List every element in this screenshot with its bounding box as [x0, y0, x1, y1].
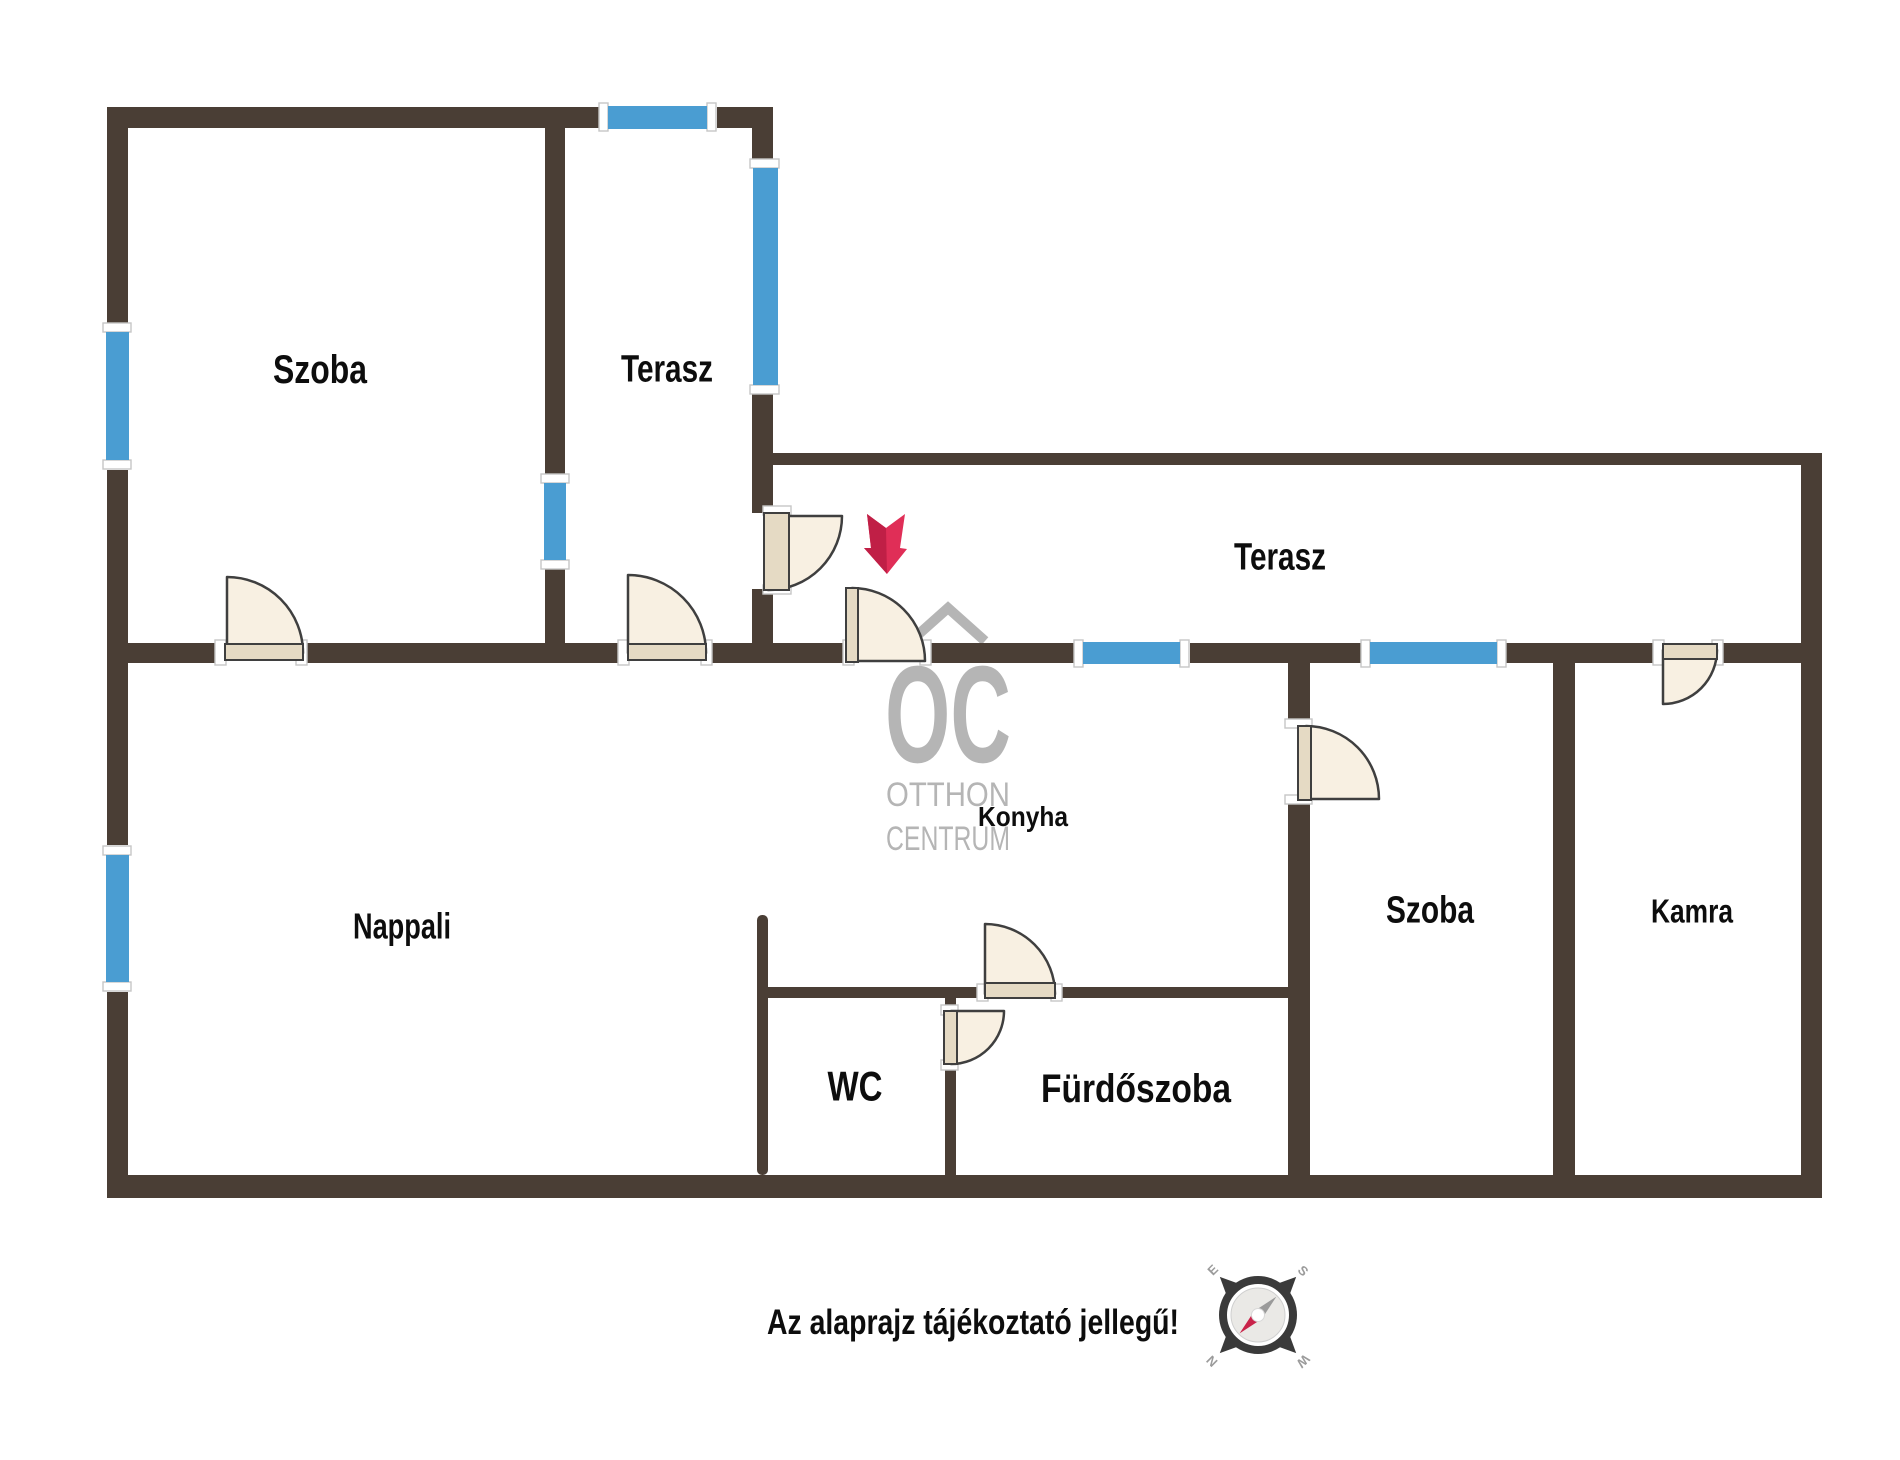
window-glass: [753, 168, 778, 385]
wall-outer-left-b: [107, 470, 128, 643]
wall-divider-szoba-terasz-a: [545, 128, 565, 475]
window-cap: [541, 474, 569, 483]
wall-main-d: [925, 643, 1074, 663]
window-glass: [608, 106, 707, 129]
window-cap: [750, 385, 779, 394]
window-glass: [106, 855, 129, 982]
room-label-nappali: Nappali: [353, 906, 451, 947]
wall-divider-konyha-szoba-b: [1288, 800, 1310, 1175]
wall-outer-left-d: [107, 992, 128, 1175]
wall-main-c: [706, 643, 852, 663]
wall-terasz-right-b: [752, 391, 773, 513]
door-leaf: [1663, 644, 1717, 659]
door-leaf: [1298, 726, 1311, 800]
window-cap: [103, 846, 131, 855]
window-cap: [541, 560, 569, 569]
main-wall-window-2: [1361, 640, 1506, 667]
room-label-wc: WC: [828, 1063, 883, 1110]
floorplan-svg: OCOTTHONCENTRUMSzobaTeraszTeraszNappaliK…: [0, 0, 1900, 1460]
wall-main-e: [1190, 643, 1361, 663]
door-leaf: [628, 644, 706, 660]
wall-wc-left: [757, 915, 768, 1175]
szoba-tl-window: [103, 323, 131, 469]
window-glass: [1083, 642, 1180, 664]
wall-outer-left-a: [107, 107, 128, 327]
wall-divider-szoba-terasz-b: [545, 568, 565, 643]
disclaimer-text: Az alaprajz tájékoztató jellegű!: [767, 1303, 1179, 1342]
terasz-side-window: [750, 159, 779, 394]
wall-terasz-right-a: [752, 107, 773, 162]
wall-wc-top-a: [757, 987, 985, 998]
wall-wc-right-b: [945, 1064, 956, 1175]
floorplan-canvas: OCOTTHONCENTRUMSzobaTeraszTeraszNappaliK…: [0, 0, 1900, 1460]
main-wall-window-1: [1074, 640, 1189, 667]
szoba-terasz-window: [541, 474, 569, 569]
window-cap: [750, 159, 779, 168]
wall-divider-szoba-kamra: [1553, 663, 1575, 1175]
window-cap: [1180, 640, 1189, 667]
terasz-top-window: [599, 103, 716, 131]
window-glass: [1370, 642, 1497, 664]
wall-main-a: [107, 643, 225, 663]
wall-main-b: [300, 643, 628, 663]
window-cap: [1074, 640, 1083, 667]
wall-big-terasz-top: [773, 453, 1822, 465]
window-cap: [707, 103, 716, 131]
window-cap: [103, 323, 131, 332]
wall-divider-konyha-szoba-a: [1288, 663, 1310, 727]
nappali-window: [103, 846, 131, 991]
window-cap: [1497, 640, 1506, 667]
window-cap: [103, 460, 131, 469]
window-cap: [599, 103, 608, 131]
wall-outer-left-c: [107, 663, 128, 845]
wall-top-left-a: [107, 107, 608, 128]
wall-outer-bottom: [107, 1175, 1822, 1198]
room-label-furdoszoba: Fürdőszoba: [1041, 1067, 1232, 1111]
window-glass: [106, 332, 129, 460]
door-leaf: [985, 983, 1055, 998]
door-leaf: [846, 588, 858, 662]
door-leaf: [764, 513, 789, 590]
window-cap: [1361, 640, 1370, 667]
wall-terasz-right-c: [752, 589, 773, 643]
room-label-szoba-right: Szoba: [1386, 889, 1475, 931]
room-label-kamra: Kamra: [1651, 893, 1734, 930]
room-label-terasz-big: Terasz: [1234, 536, 1326, 578]
wall-wc-top-b: [1057, 987, 1288, 998]
floorplan: OCOTTHONCENTRUMSzobaTeraszTeraszNappaliK…: [0, 0, 1900, 1460]
wall-outer-right: [1801, 453, 1822, 1198]
door-leaf: [225, 644, 303, 660]
window-cap: [103, 982, 131, 991]
room-label-szoba-top-left: Szoba: [273, 348, 368, 392]
window-glass: [544, 483, 566, 560]
room-label-konyha: Konyha: [978, 801, 1068, 832]
door-leaf: [944, 1011, 957, 1064]
room-label-terasz-small: Terasz: [621, 348, 713, 390]
